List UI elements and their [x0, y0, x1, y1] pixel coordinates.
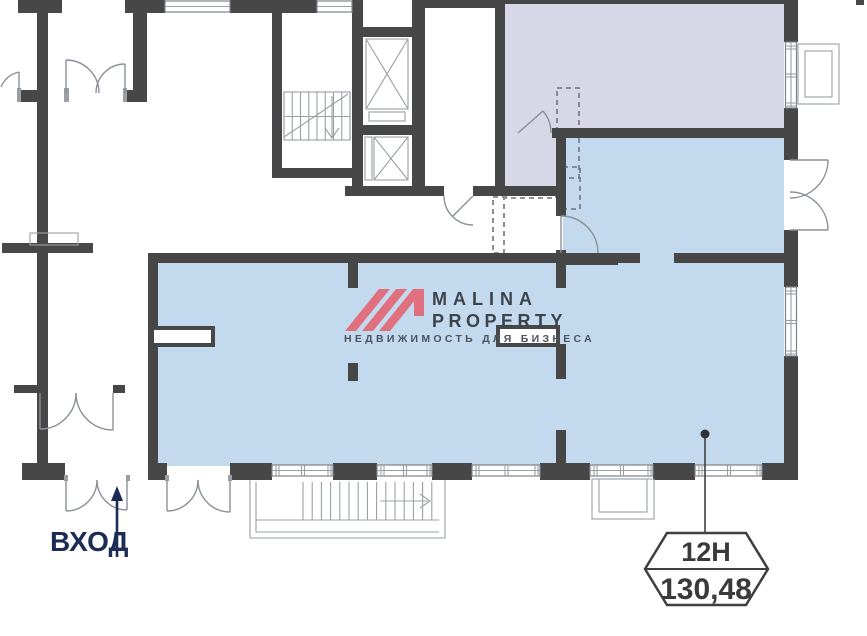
door-vestibule-right	[76, 393, 113, 430]
badge-unit-number: 12Н	[681, 537, 731, 567]
balcony	[798, 44, 839, 104]
door-unit-right	[198, 480, 230, 512]
entrance-arrow-head	[111, 486, 123, 501]
badge-unit-area: 130,48	[660, 573, 752, 606]
badge-leader-dot	[701, 430, 710, 439]
floor-plan-page: MALINA PROPERTY НЕДВИЖИМОСТЬ ДЛЯ БИЗНЕСА…	[0, 0, 867, 636]
door-entrance-left	[66, 480, 97, 511]
door-porch-right	[96, 64, 125, 93]
watermark-brand-top: MALINA	[432, 289, 538, 309]
dashed-opening	[493, 197, 504, 253]
stairs-external	[250, 480, 445, 538]
room-fills	[155, 3, 784, 466]
common-area-room	[498, 3, 784, 130]
watermark-tagline: НЕДВИЖИМОСТЬ ДЛЯ БИЗНЕСА	[344, 333, 595, 345]
common-area-vestibule	[503, 130, 558, 190]
door-side	[1, 72, 19, 90]
door-lobby	[444, 196, 473, 225]
door-unit-left	[167, 480, 198, 511]
watermark-brand-bottom: PROPERTY	[432, 311, 567, 331]
porch	[592, 479, 654, 519]
counter-left	[152, 328, 213, 345]
stairs-internal	[284, 92, 350, 140]
entrance-annotation: ВХОД	[50, 486, 129, 557]
door-porch-left	[66, 60, 99, 93]
door-entrance-right	[97, 480, 127, 510]
elevator-shafts	[365, 39, 408, 180]
floor-plan-drawing: MALINA PROPERTY НЕДВИЖИМОСТЬ ДЛЯ БИЗНЕСА…	[0, 0, 867, 636]
